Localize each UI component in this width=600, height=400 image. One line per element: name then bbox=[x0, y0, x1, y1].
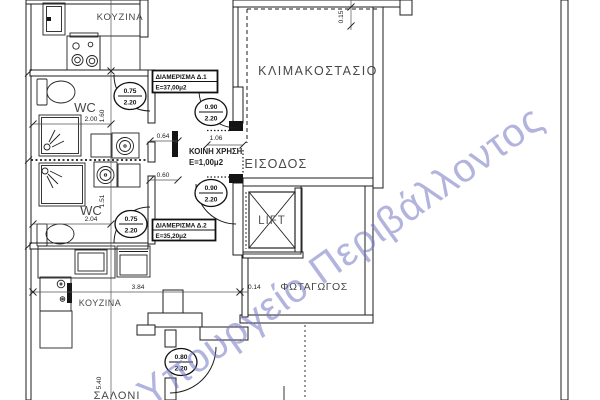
door-tag-apt2: 0.90 2.20 bbox=[195, 180, 227, 207]
label-stairwell: ΚΛΙΜΑΚΟΣΤΑΣΙΟ bbox=[258, 64, 378, 78]
dim-wall-top: 0.15 bbox=[338, 10, 345, 23]
lift-bottom-wall bbox=[243, 252, 303, 258]
dim-wc2-depth: 1.51 bbox=[99, 194, 106, 207]
corridor-east-wall-a bbox=[233, 87, 243, 123]
left-exterior-wall bbox=[26, 0, 31, 400]
walls bbox=[26, 0, 568, 400]
tag-wc1-width: 0.75 bbox=[124, 88, 137, 95]
label-common-area: Ε=1,00μ2 bbox=[189, 158, 224, 167]
dim-door-a: 0.64 bbox=[157, 133, 170, 140]
dim-wc1-width: 2.00 bbox=[85, 116, 98, 123]
apartment-box-d1: ΔΙΑΜΕΡΙΣΜΑ Δ.1 Ε=37,00μ2 bbox=[153, 71, 218, 93]
tag-wc2-width: 0.75 bbox=[125, 216, 138, 223]
dim-wc2-width: 2.04 bbox=[85, 216, 98, 223]
right-exterior-wall bbox=[561, 0, 568, 400]
label-lift: LIFT bbox=[258, 215, 286, 227]
top-right-pillar bbox=[400, 0, 412, 15]
toilet1 bbox=[37, 79, 75, 105]
label-kitchen1: ΚΟΥΖΙΝΑ bbox=[97, 12, 144, 23]
stove2 bbox=[40, 277, 71, 311]
jamb-entry1 bbox=[229, 121, 243, 131]
stove1 bbox=[67, 33, 100, 70]
label-entrance: ΕΙΣΟΔΟΣ bbox=[245, 157, 308, 171]
duct-step-2 bbox=[148, 313, 202, 327]
fridge bbox=[43, 3, 65, 35]
label-common-use: ΚΟΙΝΗ ΧΡΗΣΗ bbox=[189, 147, 243, 156]
tag-apt1-width: 0.90 bbox=[205, 104, 218, 111]
apartment-d2-area: Ε=35,20μ2 bbox=[156, 233, 187, 240]
label-livingroom: ΣΑΛΟΝΙ bbox=[94, 390, 141, 400]
tag-apt1-height: 2.20 bbox=[205, 116, 218, 123]
door-tag-wc2: 0.75 2.20 bbox=[115, 211, 147, 238]
dim-corridor-width: 1.06 bbox=[210, 135, 223, 142]
stairwell-right-wall bbox=[373, 7, 383, 188]
apartment-box-d2: ΔΙΑΜΕΡΙΣΜΑ Δ.2 Ε=35,20μ2 bbox=[153, 220, 216, 241]
apartment-d1-name: ΔΙΑΜΕΡΙΣΜΑ Δ.1 bbox=[156, 74, 208, 81]
tag-wc1-height: 2.20 bbox=[124, 100, 137, 107]
entrance-south-wall bbox=[243, 178, 373, 186]
jamb-entry2 bbox=[229, 174, 243, 183]
label-kitchen2: ΚΟΥΖΙΝΑ bbox=[79, 298, 121, 308]
corridor-west-wall-b bbox=[148, 142, 155, 162]
oven2 bbox=[117, 246, 150, 277]
dim-kitchen-run: 3.84 bbox=[132, 284, 145, 291]
door-tag-apt1: 0.90 2.20 bbox=[195, 99, 227, 126]
counter2-lower bbox=[40, 311, 72, 348]
top-exterior-wall bbox=[233, 0, 410, 7]
door-tag-wc1: 0.75 2.20 bbox=[114, 83, 146, 110]
floor-plan-drawing: 0.75 2.20 0.75 2.20 0.90 2.20 0.90 2.20 … bbox=[0, 0, 600, 400]
apartment-d1-area: Ε=37,00μ2 bbox=[156, 85, 187, 92]
label-wc1: WC bbox=[74, 100, 96, 115]
kitchen2-counter bbox=[38, 246, 115, 278]
shower1 bbox=[39, 115, 81, 156]
dim-wc1-depth: 1.60 bbox=[99, 109, 106, 122]
duct-step-4 bbox=[137, 325, 155, 335]
center-top-wall bbox=[233, 0, 238, 88]
watermark-text: Υπουργείο Περιβάλλοντος bbox=[130, 97, 552, 400]
wc1-top-wall bbox=[30, 70, 148, 76]
tag-apt2-height: 2.20 bbox=[205, 197, 218, 204]
tag-apt2-width: 0.90 bbox=[205, 185, 218, 192]
living-door-jamb-top bbox=[165, 330, 176, 347]
tag-wc2-height: 2.20 bbox=[125, 228, 138, 235]
dim-door-b: 0.60 bbox=[157, 172, 170, 179]
dim-living-height: 5.40 bbox=[96, 376, 103, 389]
vanity-sinks bbox=[91, 133, 140, 187]
duct-step-1 bbox=[163, 290, 183, 315]
shower2 bbox=[39, 163, 85, 206]
counter1 bbox=[100, 36, 140, 70]
apartment-d2-name: ΔΙΑΜΕΡΙΣΜΑ Δ.2 bbox=[156, 223, 208, 230]
corridor-east-wall-b bbox=[233, 183, 243, 255]
floor-plan-canvas: 0.75 2.20 0.75 2.20 0.90 2.20 0.90 2.20 … bbox=[0, 0, 600, 400]
